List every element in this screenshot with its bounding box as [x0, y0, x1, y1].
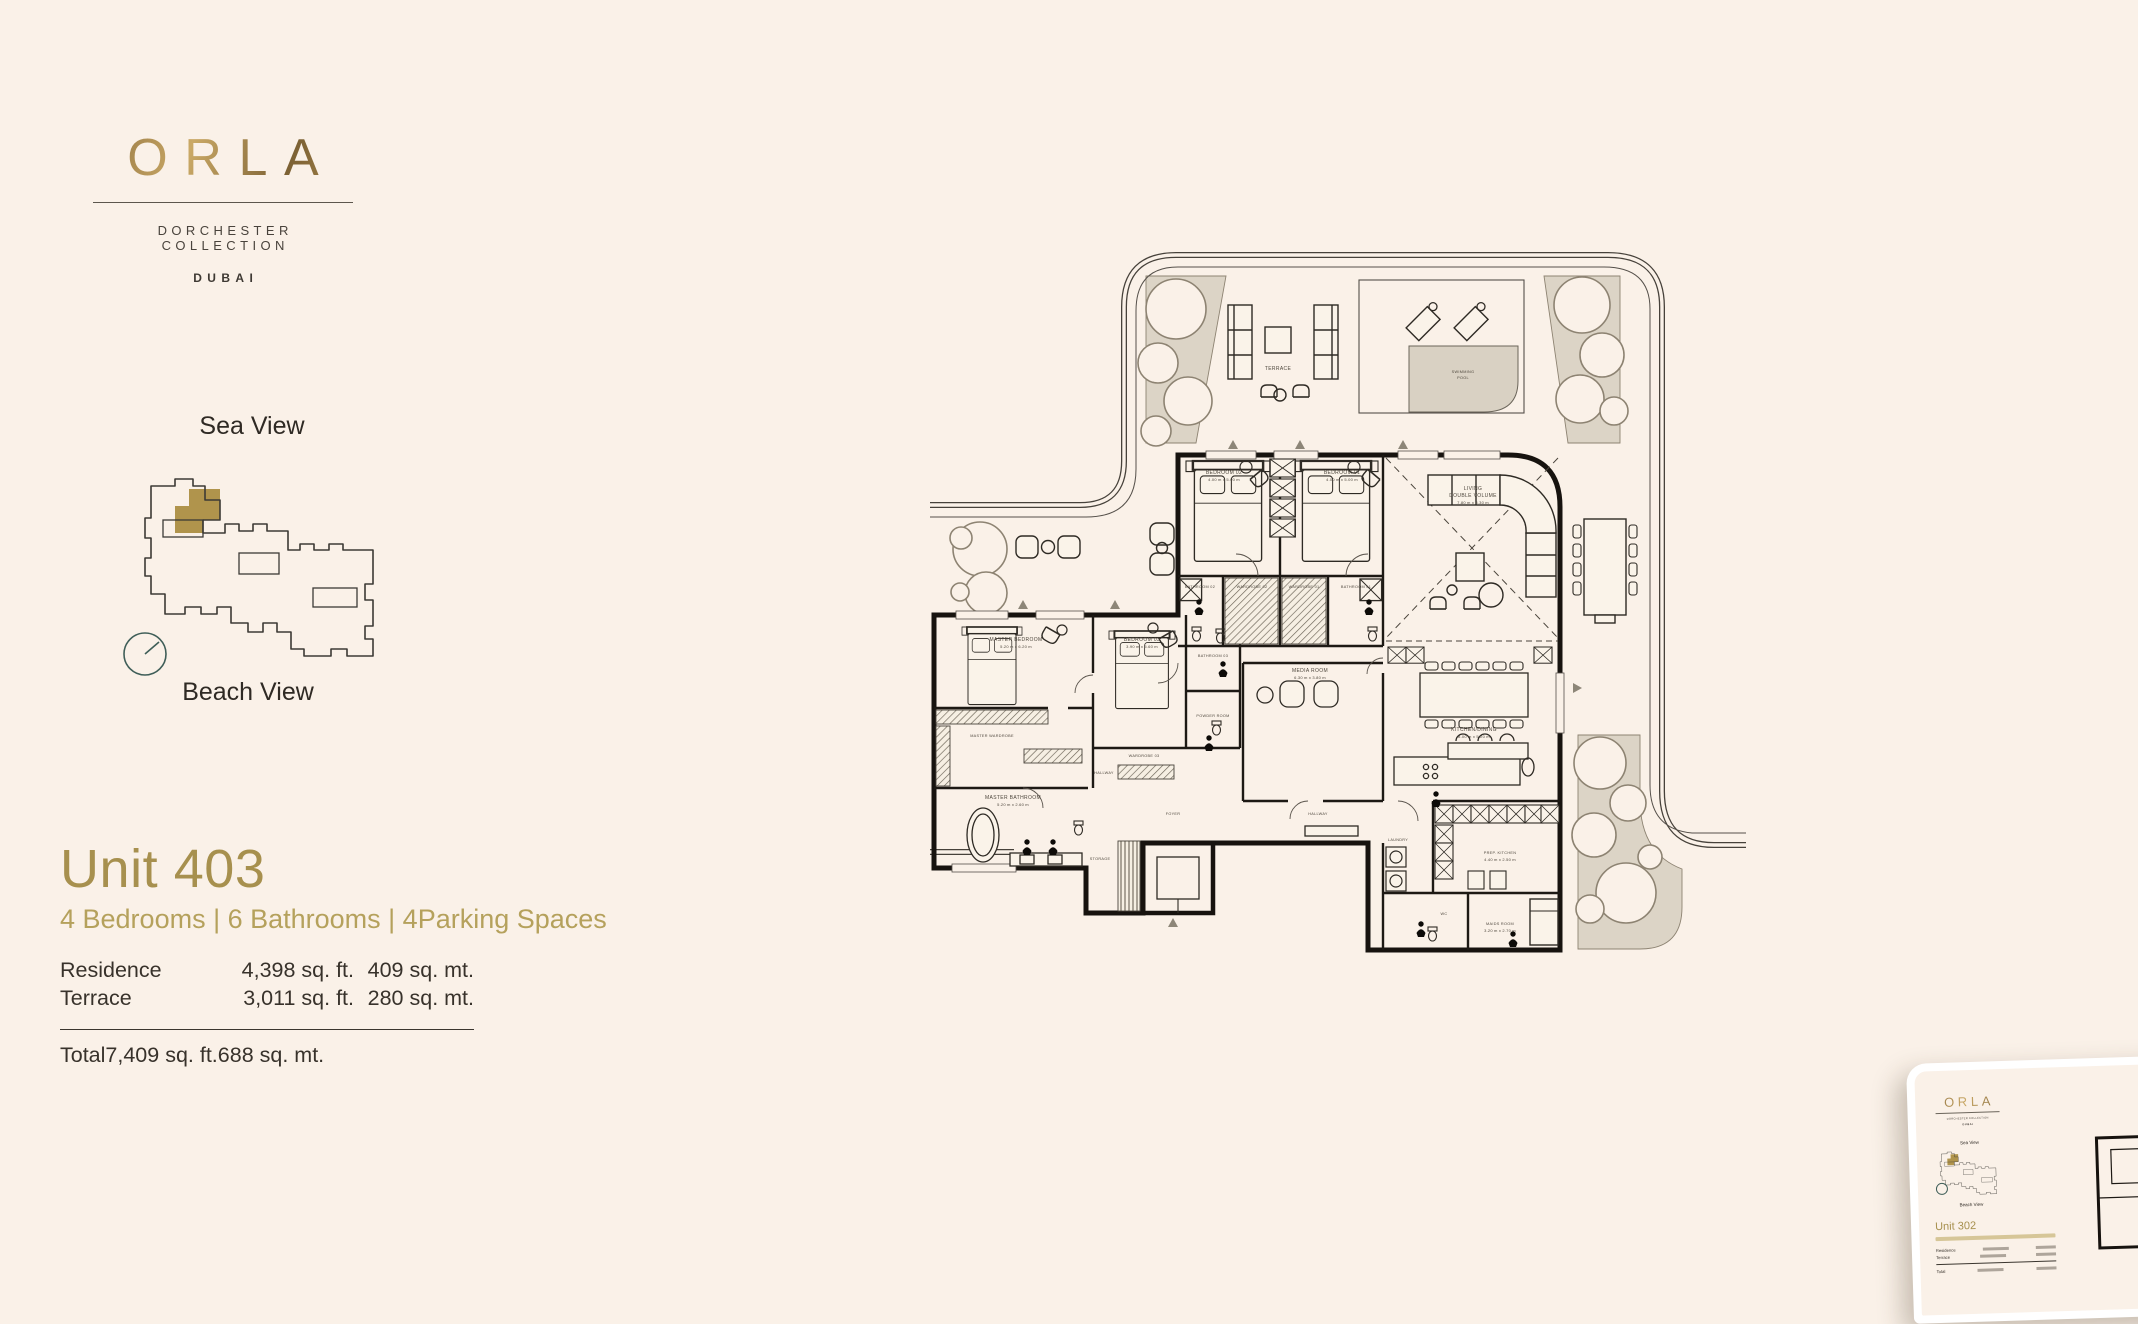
dim-master-bedroom: 5.20 m x 6.20 m [1000, 644, 1032, 649]
label-bathroom03: BATHROOM 03 [1198, 654, 1228, 658]
label-powder-room: POWDER ROOM [1196, 714, 1229, 718]
label-wardrobe01: WARDROBE 01 [1289, 585, 1320, 589]
compass-icon [122, 631, 168, 677]
label-hallway-b: HALLWAY [1308, 812, 1328, 816]
label-foyer: FOYER [1166, 812, 1181, 816]
pool-area [1359, 280, 1524, 413]
unit-title: Unit 403 [60, 838, 265, 900]
brand-name: ORLA [93, 128, 370, 188]
label-hallway-a: HALLWAY [1094, 771, 1114, 775]
thumb-floor-plan [2065, 1070, 2138, 1309]
label-wardrobe03: WARDROBE 03 [1129, 754, 1160, 758]
label-media-room: MEDIA ROOM [1292, 668, 1328, 674]
next-page-thumbnail[interactable]: ORLA DORCHESTER COLLECTION DUBAI Sea Vie… [1906, 1050, 2138, 1324]
brand-collection: DORCHESTER COLLECTION [93, 223, 357, 253]
label-master-wardrobe: MASTER WARDROBE [970, 734, 1014, 738]
label-bedroom01: BEDROOM 01 [1324, 470, 1360, 476]
table-row: Terrace 3,011 sq. ft. 280 sq. mt. [60, 984, 474, 1012]
brochure-page: { "logo": { "brand": "ORLA", "collection… [0, 0, 2138, 1228]
label-pool-2: POOL [1457, 376, 1469, 380]
dim-maids-room: 3.20 m x 2.70 m [1484, 928, 1516, 933]
furniture [962, 459, 1559, 945]
dim-kitchen: 8.00 m x 5.20 m [1458, 734, 1490, 739]
thumb-row-label: Total [1936, 1268, 1945, 1275]
thumb-row-label: Terrace [1936, 1254, 1950, 1261]
thumb-beach-view-label: Beach View [1936, 1201, 2006, 1208]
table-total-row: Total 7,409 sq. ft. 688 sq. mt. [60, 1040, 474, 1070]
label-wardrobe02: WARDROBE 02 [1237, 585, 1268, 589]
row-sqft: 3,011 sq. ft. [210, 984, 354, 1012]
label-pool-1: SWIMMING [1452, 370, 1475, 374]
floor-plan: TERRACE SWIMMING POOL BEDROOM 02 4.00 m … [928, 243, 1746, 968]
beach-view-label: Beach View [118, 678, 378, 707]
dim-bedroom03: 3.90 m x 5.60 m [1126, 644, 1158, 649]
thumb-subtitle-bar [1935, 1233, 2055, 1241]
thumb-logo-divider [1936, 1111, 2000, 1114]
building-key-plan [141, 474, 379, 670]
label-master-bathroom: MASTER BATHROOM [985, 795, 1041, 801]
dim-prep-kitchen: 4.40 m x 2.50 m [1484, 857, 1516, 862]
dim-living: 7.80 m x 8.30 m [1457, 500, 1489, 505]
key-plan-footprint [145, 479, 373, 656]
label-prep-kitchen: PREP. KITCHEN [1484, 851, 1517, 855]
sun-lounger [1406, 301, 1446, 341]
row-label: Residence [60, 956, 210, 984]
thumb-logo: ORLA DORCHESTER COLLECTION DUBAI [1935, 1093, 2000, 1127]
brand-logo: ORLA DORCHESTER COLLECTION DUBAI [93, 128, 353, 285]
thumbnail-page: ORLA DORCHESTER COLLECTION DUBAI Sea Vie… [1914, 1058, 2138, 1316]
table-divider [60, 1029, 474, 1030]
sea-view-label: Sea View [122, 412, 382, 441]
thumb-city: DUBAI [1936, 1122, 2000, 1127]
thumb-brand: ORLA [1935, 1093, 2003, 1110]
label-storage: STORAGE [1090, 857, 1111, 861]
label-kitchen: KITCHEN/DINING [1451, 727, 1497, 733]
row-sqmt: 409 sq. mt. [354, 956, 474, 984]
thumb-collection: DORCHESTER COLLECTION [1936, 1116, 2000, 1121]
table-row: Residence 4,398 sq. ft. 409 sq. mt. [60, 956, 474, 984]
logo-divider [93, 202, 353, 203]
dim-media-room: 6.30 m x 3.80 m [1294, 675, 1326, 680]
label-bedroom03: BEDROOM 03 [1124, 637, 1160, 643]
row-sqmt: 280 sq. mt. [354, 984, 474, 1012]
label-master-bedroom: MASTER BEDROOM [990, 637, 1043, 643]
row-label: Terrace [60, 984, 210, 1012]
label-living-1: LIVING [1464, 486, 1483, 492]
label-bedroom02: BEDROOM 02 [1206, 470, 1242, 476]
thumb-area-table: Residence Terrace Total [1936, 1243, 2057, 1274]
label-bathroom01: BATHROOM 01 [1341, 585, 1371, 589]
unit-subtitle: 4 Bedrooms | 6 Bathrooms | 4Parking Spac… [60, 904, 607, 935]
label-living-2: DOUBLE VOLUME [1449, 493, 1497, 499]
total-sqmt: 688 sq. mt. [218, 1040, 324, 1070]
label-laundry: LAUNDRY [1388, 838, 1408, 842]
thumb-unit-title: Unit 302 [1935, 1220, 1976, 1233]
dim-master-bathroom: 5.20 m x 2.60 m [997, 802, 1029, 807]
dim-bedroom02: 4.00 m x 5.00 m [1208, 477, 1240, 482]
label-wc: WC [1441, 912, 1448, 916]
thumb-key-plan [1939, 1149, 1998, 1199]
area-table: Residence 4,398 sq. ft. 409 sq. mt. Terr… [60, 956, 474, 1070]
brand-city: DUBAI [93, 271, 358, 285]
thumb-sea-view-label: Sea View [1934, 1139, 2004, 1146]
label-terrace: TERRACE [1265, 366, 1292, 372]
label-maids-room: MAIDS ROOM [1486, 922, 1514, 926]
door-arcs [1023, 554, 1418, 821]
total-sqft: 7,409 sq. ft. [105, 1040, 217, 1070]
row-sqft: 4,398 sq. ft. [210, 956, 354, 984]
label-bathroom02: BATHROOM 02 [1185, 585, 1215, 589]
total-label: Total [60, 1040, 105, 1070]
elevator [1143, 843, 1213, 913]
dim-bedroom01: 4.00 m x 5.00 m [1326, 477, 1358, 482]
sun-lounger [1454, 301, 1494, 341]
